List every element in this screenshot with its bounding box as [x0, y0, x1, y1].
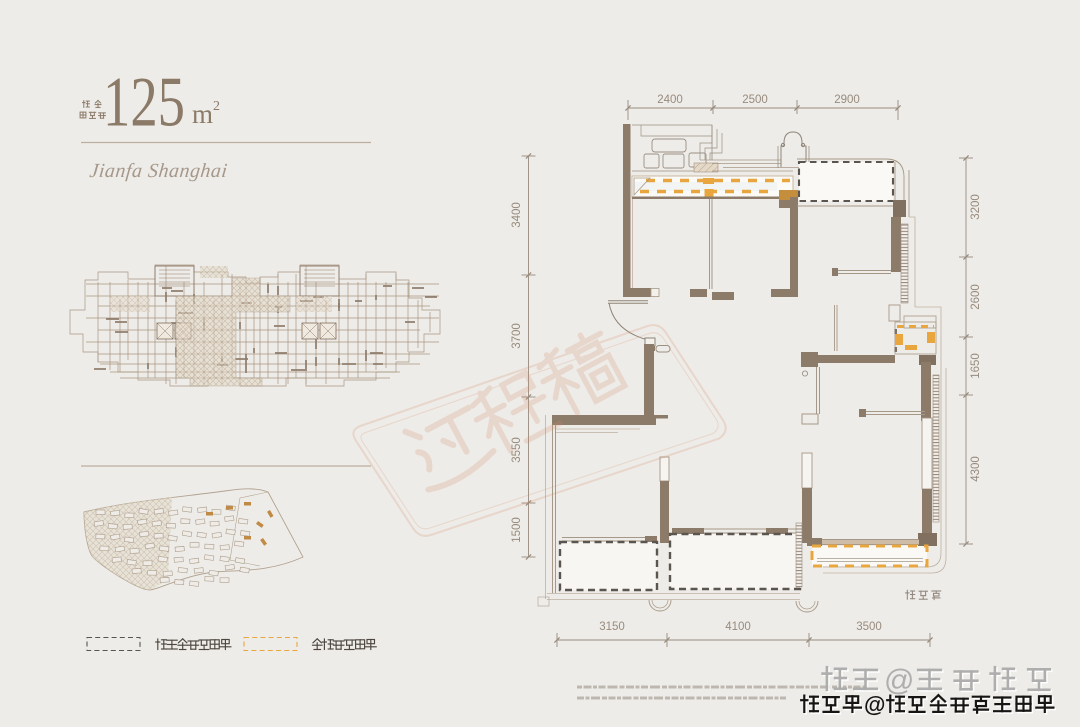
- svg-text:2900: 2900: [834, 94, 860, 106]
- svg-text:@: @: [864, 692, 885, 717]
- svg-text:4100: 4100: [725, 621, 751, 633]
- svg-text:125: 125: [103, 64, 185, 142]
- svg-text:2: 2: [213, 99, 220, 114]
- svg-text:1650: 1650: [970, 353, 982, 379]
- svg-text:2600: 2600: [970, 284, 982, 310]
- svg-text:m: m: [192, 99, 213, 129]
- svg-text:3500: 3500: [856, 621, 882, 633]
- svg-text:Jianfa Shanghai: Jianfa Shanghai: [88, 160, 228, 182]
- svg-text:3200: 3200: [970, 194, 982, 220]
- svg-text:@: @: [884, 664, 914, 697]
- svg-text:3400: 3400: [511, 202, 523, 228]
- svg-text:2400: 2400: [657, 94, 683, 106]
- svg-text:4300: 4300: [970, 456, 982, 482]
- svg-text:3700: 3700: [511, 323, 523, 349]
- svg-text:2500: 2500: [742, 94, 768, 106]
- svg-text:1500: 1500: [511, 517, 523, 543]
- svg-text:3150: 3150: [599, 621, 625, 633]
